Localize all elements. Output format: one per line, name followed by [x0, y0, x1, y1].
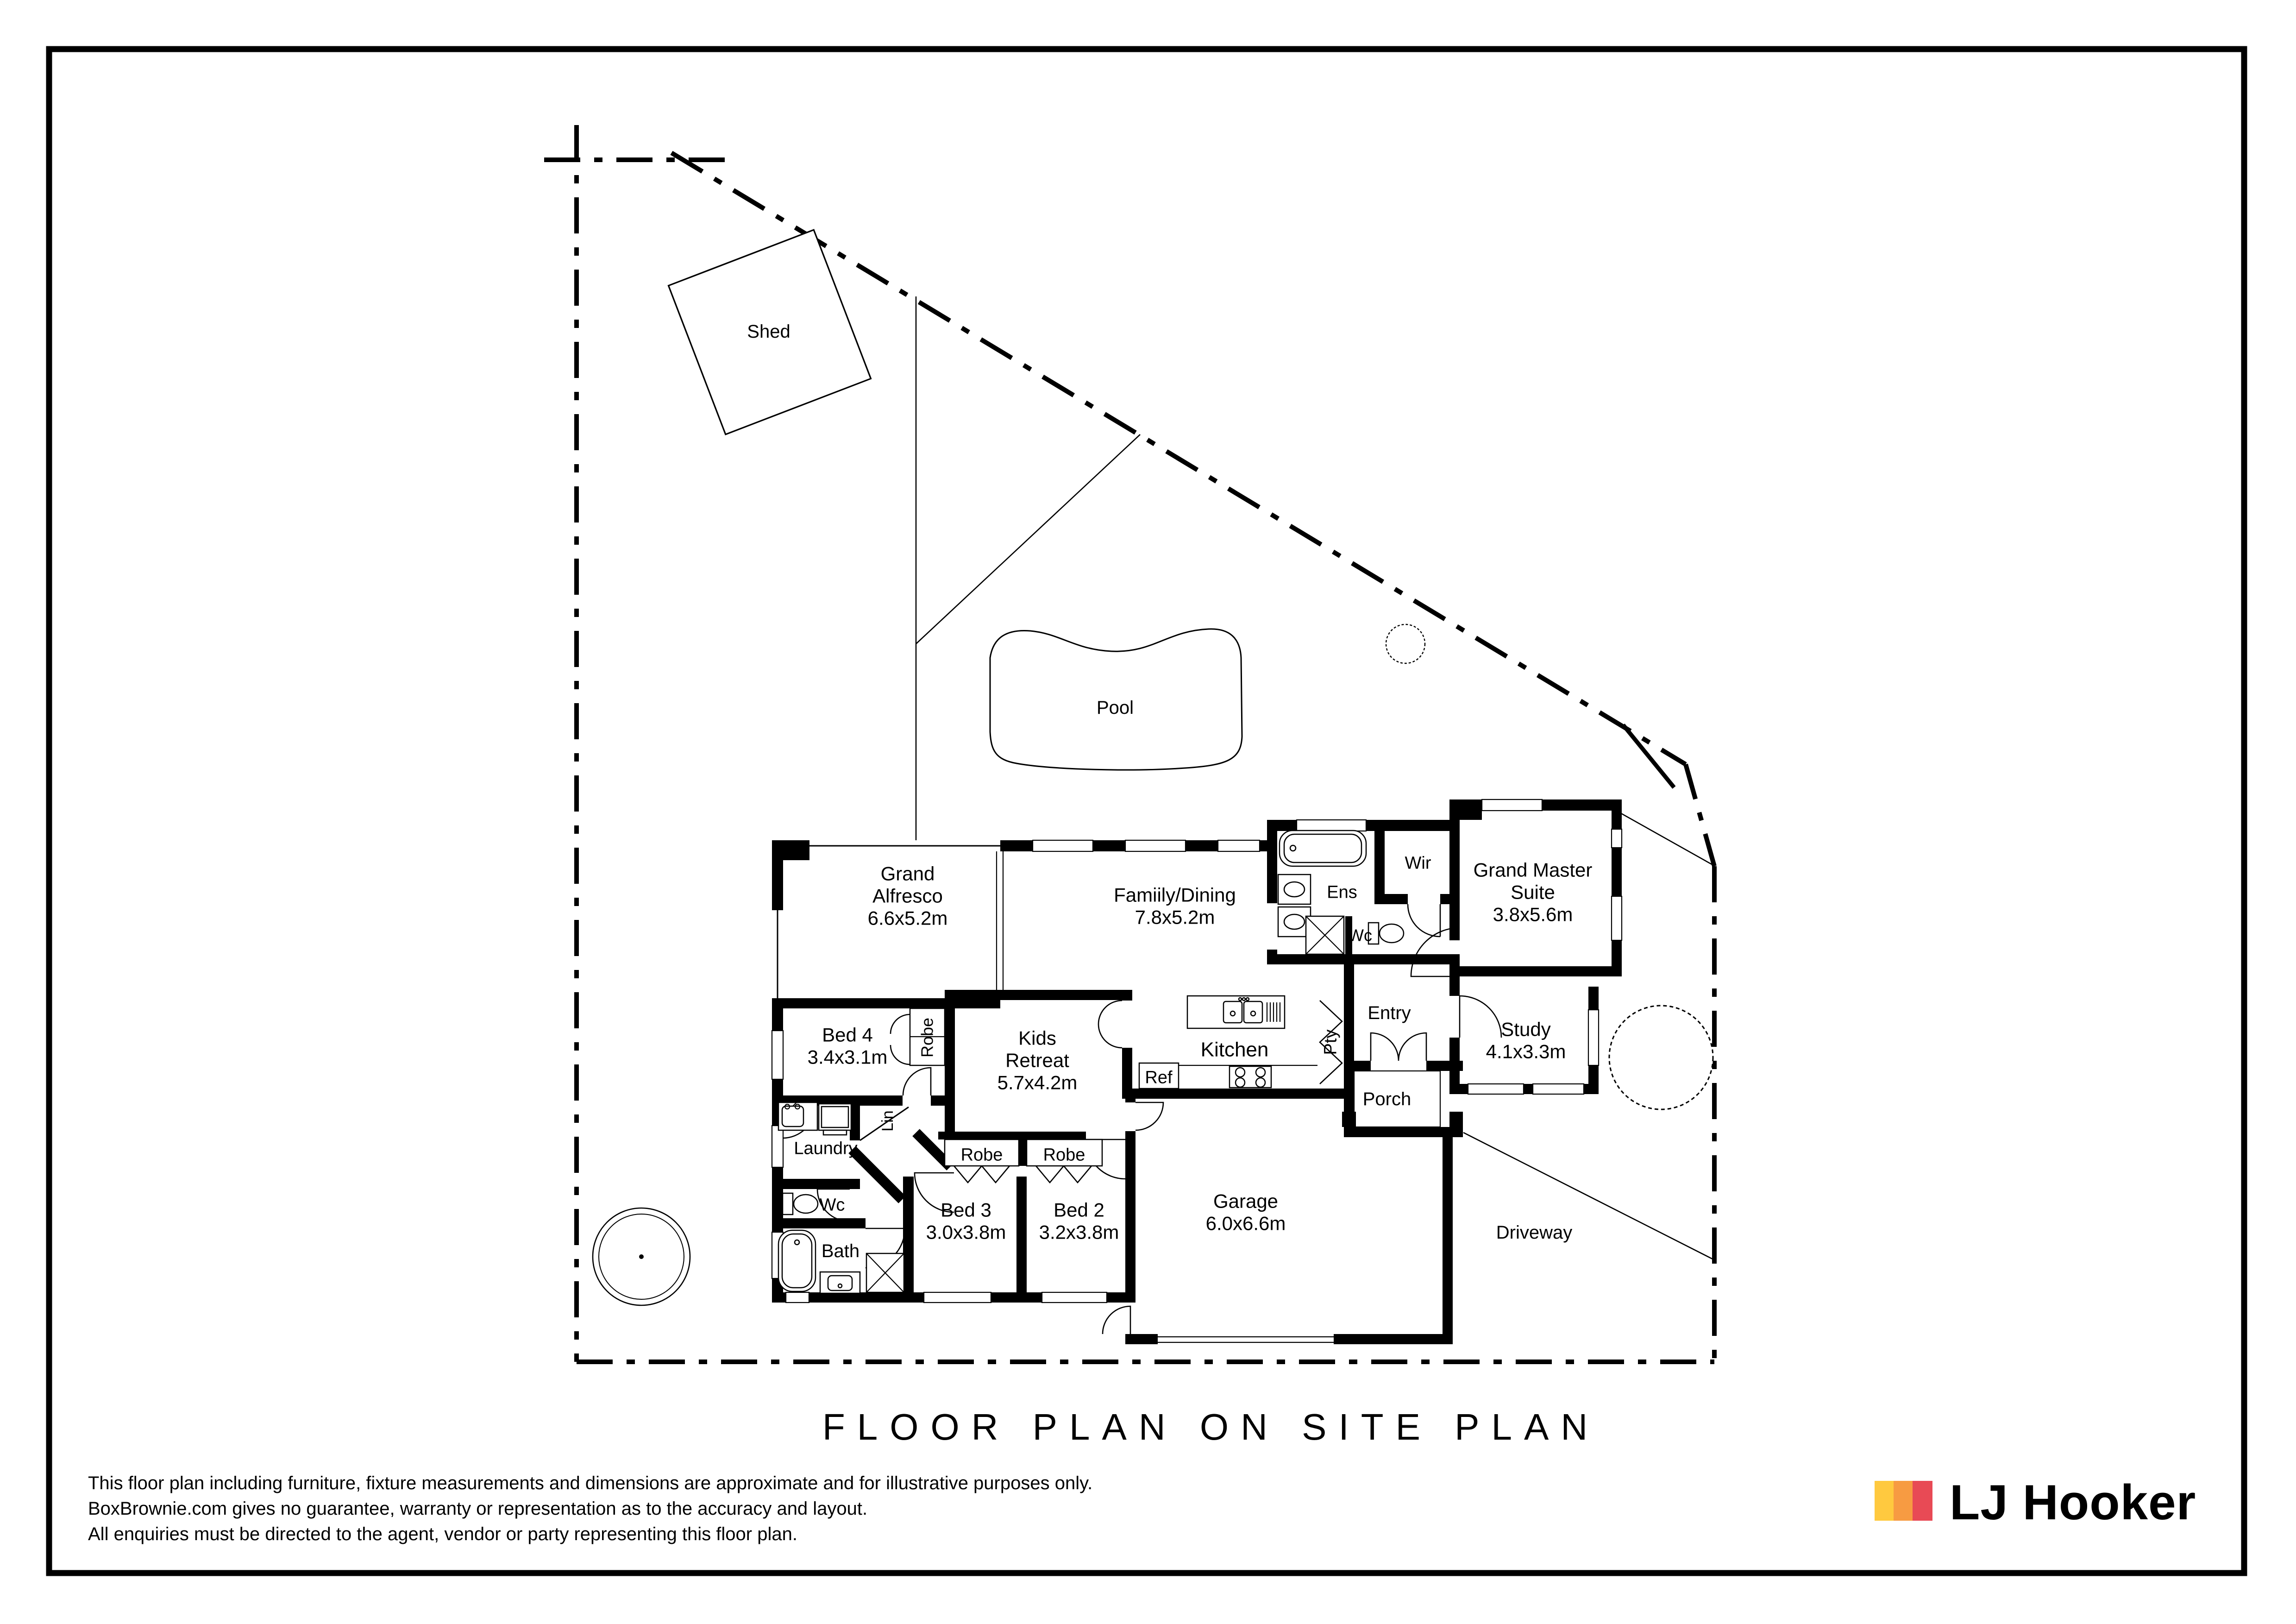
- ref-label: Ref: [1145, 1068, 1173, 1087]
- toilet-ens-icon: [1368, 923, 1404, 944]
- cooktop-icon: [1179, 1065, 1317, 1088]
- disclaimer-line-3: All enquiries must be directed to the ag…: [88, 1524, 797, 1544]
- porch-label: Porch: [1363, 1089, 1411, 1109]
- plan-labels: ShedPoolGrandAlfresco6.6x5.2mFamiily/Din…: [747, 321, 1592, 1261]
- study-label: Study4.1x3.3m: [1486, 1019, 1566, 1063]
- washer-icon: [819, 1104, 851, 1135]
- kids-retreat-label: KidsRetreat5.7x4.2m: [997, 1027, 1078, 1094]
- shower-main-icon: [866, 1253, 904, 1292]
- shed-label: Shed: [747, 321, 790, 342]
- tree-small-icon: [1386, 624, 1425, 663]
- driveway-label: Driveway: [1496, 1222, 1572, 1243]
- disclaimer-line-1: This floor plan including furniture, fix…: [88, 1473, 1092, 1493]
- garage-label: Garage6.0x6.6m: [1206, 1190, 1286, 1234]
- kitchen-label: Kitchen: [1201, 1038, 1269, 1061]
- pty-label: Pty: [1321, 1030, 1340, 1055]
- kitchen-island-icon: [1187, 996, 1285, 1028]
- disclaimer: This floor plan including furniture, fix…: [88, 1473, 1092, 1544]
- shower-ens-icon: [1306, 916, 1344, 954]
- laundry-trough-icon: [778, 1100, 817, 1130]
- disclaimer-line-2: BoxBrownie.com gives no guarantee, warra…: [88, 1498, 867, 1519]
- logo-bar-red: [1913, 1481, 1932, 1521]
- bed2-label: Bed 23.2x3.8m: [1039, 1199, 1119, 1243]
- ljhooker-logo: LJ Hooker: [1875, 1474, 2196, 1530]
- bed3-label: Bed 33.0x3.8m: [926, 1199, 1006, 1243]
- tree-ring-icon: [593, 1208, 690, 1305]
- floor-plan-page: ShedPoolGrandAlfresco6.6x5.2mFamiily/Din…: [0, 0, 2296, 1624]
- wc-label: Wc: [820, 1195, 845, 1215]
- laundry-label: Laundry: [794, 1139, 857, 1158]
- robe-bed3-label: Robe: [961, 1145, 1003, 1164]
- ens-wc-label: Wc: [1348, 926, 1372, 945]
- bathtub-main-icon: [778, 1230, 816, 1291]
- tree-large-icon: [1609, 1006, 1713, 1109]
- fence-lines: [916, 296, 1714, 1260]
- pool-label: Pool: [1097, 698, 1134, 718]
- bathtub-ens-icon: [1280, 831, 1366, 866]
- bath-label: Bath: [822, 1241, 859, 1261]
- robe-bed2-label: Robe: [1043, 1145, 1085, 1164]
- logo-text: LJ Hooker: [1950, 1474, 2196, 1530]
- page-frame: [49, 49, 2244, 1573]
- robe-bed4-label: Robe: [918, 1018, 937, 1057]
- ens-label: Ens: [1327, 882, 1357, 902]
- lin-label: Lin: [879, 1110, 897, 1131]
- page-title: FLOOR PLAN ON SITE PLAN: [822, 1406, 1600, 1448]
- logo-bar-yellow: [1875, 1481, 1894, 1521]
- entry-label: Entry: [1368, 1003, 1411, 1023]
- grand-alfresco-label: GrandAlfresco6.6x5.2m: [868, 863, 948, 929]
- logo-bar-orange: [1894, 1481, 1913, 1521]
- family-dining-label: Famiily/Dining7.8x5.2m: [1114, 884, 1236, 928]
- wir-label: Wir: [1405, 853, 1431, 873]
- grand-master-label: Grand MasterSuite3.8x5.6m: [1474, 859, 1593, 925]
- trees: [593, 624, 1713, 1305]
- toilet-main-icon: [783, 1193, 818, 1215]
- vanity-icon: [820, 1272, 860, 1293]
- bed4-label: Bed 43.4x3.1m: [808, 1024, 888, 1068]
- survey-tick: [1623, 725, 1674, 787]
- garage-door: [1158, 1334, 1334, 1344]
